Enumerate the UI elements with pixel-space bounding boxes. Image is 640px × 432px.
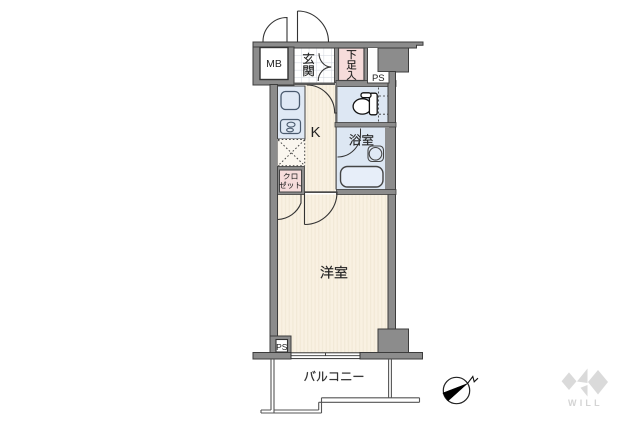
svg-text:MB: MB (266, 58, 282, 70)
svg-text:PS: PS (372, 73, 385, 84)
svg-text:K: K (310, 124, 320, 141)
svg-text:WILL: WILL (568, 398, 603, 408)
svg-text:PS: PS (276, 342, 288, 352)
